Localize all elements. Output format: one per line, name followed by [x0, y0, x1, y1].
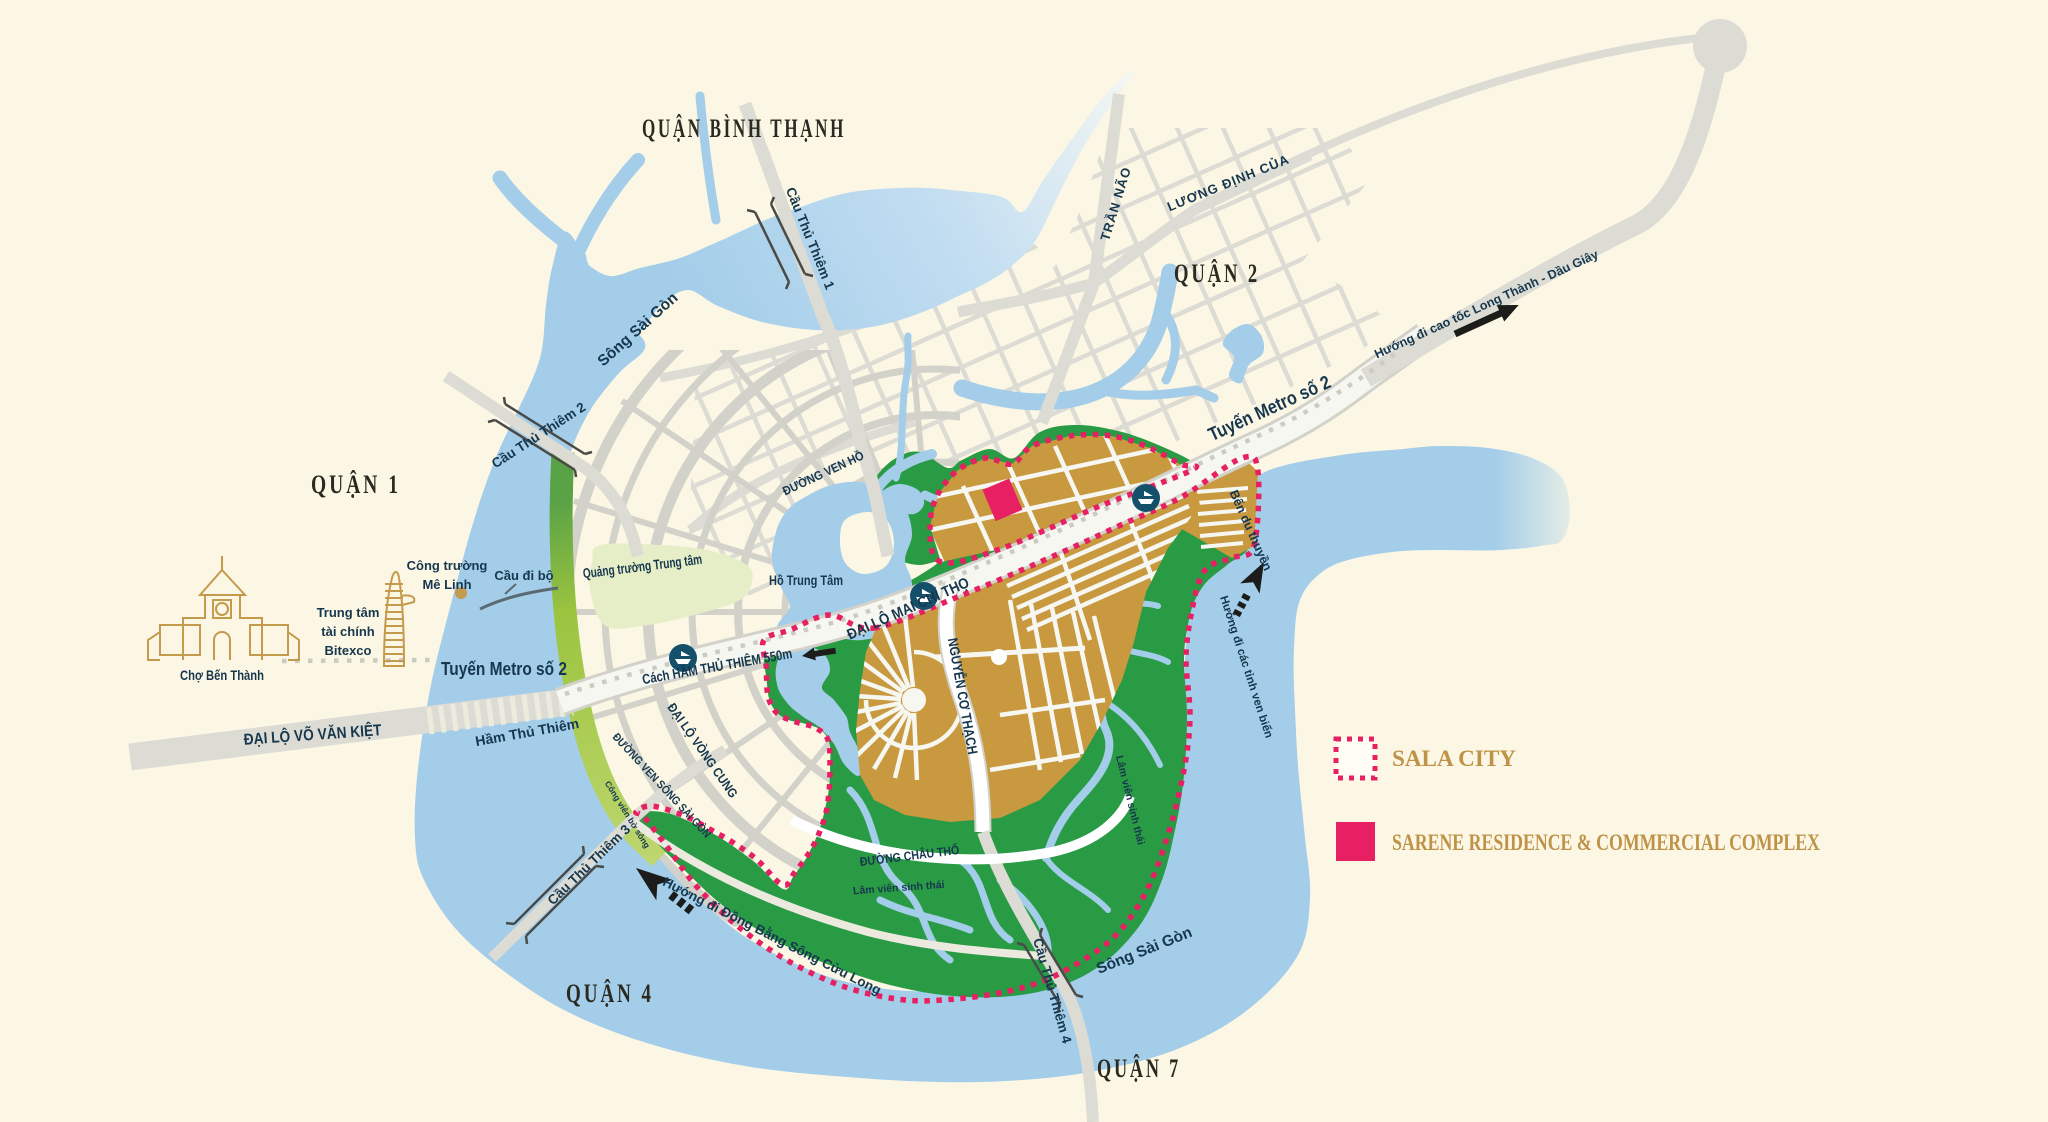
svg-text:Trung tâm: Trung tâm [317, 605, 380, 620]
svg-text:Công trường: Công trường [407, 558, 488, 573]
svg-text:Tuyến Metro số 2: Tuyến Metro số 2 [441, 659, 567, 679]
svg-text:QUẬN 4: QUẬN 4 [566, 979, 654, 1008]
svg-text:QUẬN 1: QUẬN 1 [311, 470, 401, 499]
svg-text:Chợ Bến Thành: Chợ Bến Thành [180, 667, 264, 683]
svg-text:tài chính: tài chính [321, 624, 375, 639]
svg-text:SALA CITY: SALA CITY [1392, 746, 1516, 771]
svg-text:Mê Linh: Mê Linh [422, 577, 471, 592]
svg-text:QUẬN 2: QUẬN 2 [1174, 259, 1260, 288]
svg-text:QUẬN BÌNH THẠNH: QUẬN BÌNH THẠNH [642, 114, 846, 143]
svg-text:Bitexco: Bitexco [325, 643, 372, 658]
svg-text:Hồ Trung Tâm: Hồ Trung Tâm [769, 572, 843, 588]
svg-text:QUẬN 7: QUẬN 7 [1097, 1054, 1181, 1083]
svg-text:SARENE RESIDENCE & COMMERCIAL: SARENE RESIDENCE & COMMERCIAL COMPLEX [1392, 830, 1820, 855]
svg-text:Cầu đi bộ: Cầu đi bộ [494, 568, 553, 583]
